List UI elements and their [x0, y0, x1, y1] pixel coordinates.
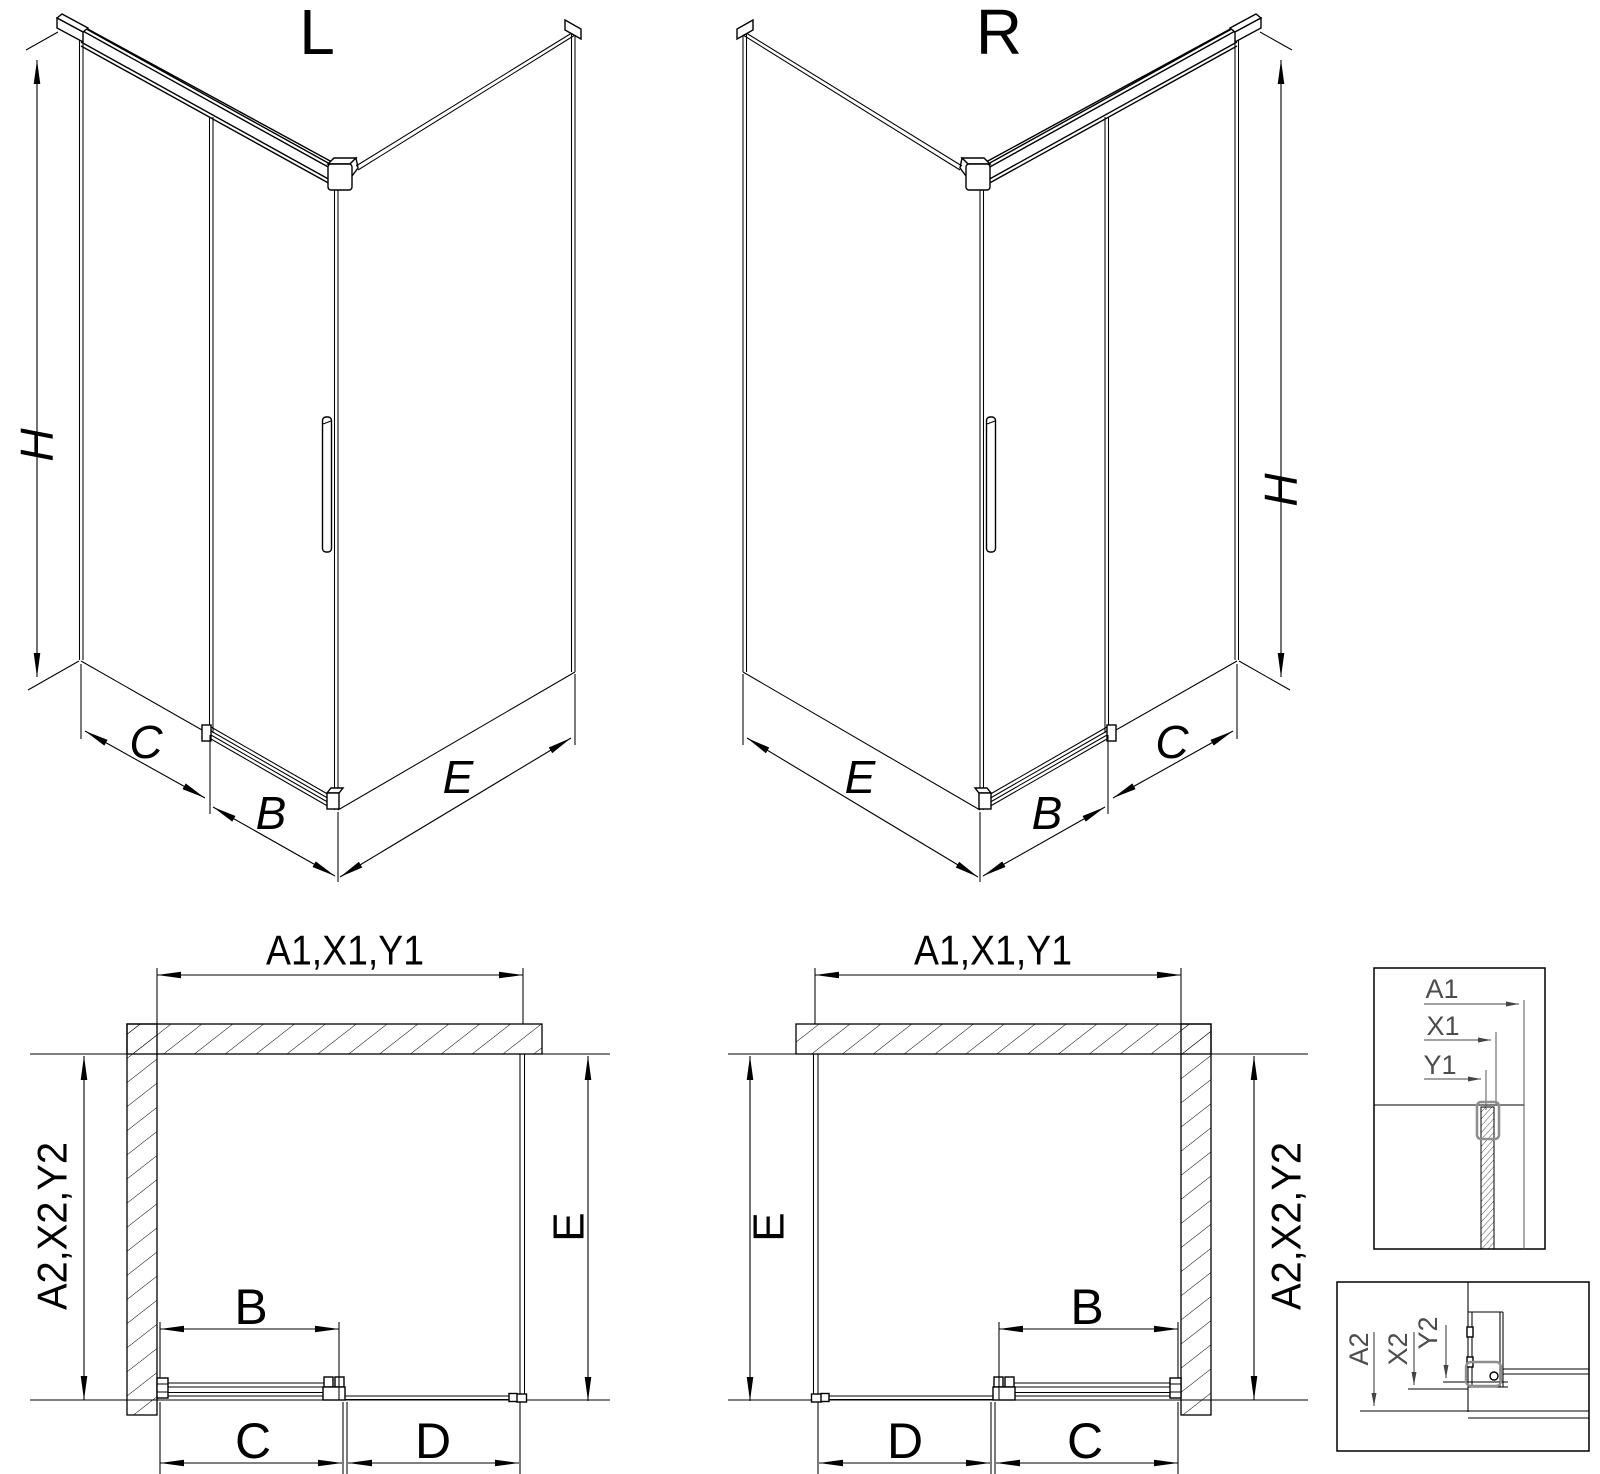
side-panel-plan [517, 1054, 527, 1402]
fixed-glass-plan [345, 1396, 511, 1400]
rail-corner-block-top [975, 788, 991, 793]
wall-left-hatched [127, 1024, 157, 1415]
plan-left-top-dim: A1,X1,Y1 [266, 927, 424, 974]
plan-right-b: B [1070, 1279, 1103, 1335]
dim-label-e-left: E [443, 751, 475, 803]
rail-corner-block [979, 793, 991, 809]
corner-block [966, 164, 990, 190]
carriage-notch [1467, 1327, 1473, 1337]
dim-label-h-right: H [1255, 473, 1307, 507]
dim-label-c-right: C [1155, 716, 1189, 768]
plan-view-right: A1,X1,Y1 A2,X2,Y2 B D C E [728, 927, 1310, 1474]
plan-right-top-dim: A1,X1,Y1 [914, 927, 1072, 974]
plan-right-side-dim: A2,X2,Y2 [1263, 1142, 1310, 1310]
door-seam-edge [210, 117, 214, 733]
roller-wheel [1490, 1372, 1498, 1380]
roller-carriage [323, 1387, 345, 1400]
plan-right-d: D [887, 1413, 923, 1469]
plan-left-c: C [235, 1413, 271, 1469]
plan-view-left: A1,X1,Y1 A2,X2,Y2 B C D E [29, 927, 611, 1474]
plan-right-c: C [1067, 1413, 1103, 1469]
fixed-panel-right [1105, 40, 1239, 734]
wall-profile-bracket [157, 1378, 168, 1398]
corner-post-left [335, 190, 339, 810]
dim-label-b-right: B [1032, 787, 1063, 839]
side-panel-plan [812, 1054, 822, 1402]
detail-y1: Y1 [1423, 1050, 1456, 1080]
dimensions-iso-left [26, 32, 575, 882]
plan-left-d: D [415, 1413, 451, 1469]
detail-x2: X2 [1383, 1332, 1413, 1365]
rail-corner-block [327, 793, 339, 809]
plan-left-side-dim: A2,X2,Y2 [29, 1142, 76, 1310]
door-rails [168, 1383, 330, 1396]
roller-knob [1005, 1377, 1014, 1387]
technical-drawing-canvas: L H C B E [0, 0, 1600, 1474]
corner-post-right [980, 190, 984, 810]
dim-label-h-left: H [11, 428, 63, 462]
detail-y2: Y2 [1413, 1316, 1443, 1349]
rail-corner-block-top [327, 788, 343, 793]
corner-block [328, 164, 352, 190]
iso-view-right: R H C B E [737, 0, 1307, 882]
detail-frame [1337, 1282, 1589, 1451]
wall-right-hatched [1181, 1024, 1211, 1415]
plan-left-b: B [234, 1279, 267, 1335]
side-panel-foot [812, 1394, 822, 1402]
bottom-track-section [1503, 1369, 1589, 1374]
wall-top-hatched [127, 1024, 542, 1054]
plan-right-e: E [745, 1212, 794, 1241]
fixed-panel-left [80, 40, 214, 734]
door-handle-left [323, 417, 332, 552]
roller-carriage [993, 1387, 1015, 1400]
detail-view-top: A1 X1 Y1 [1374, 968, 1545, 1249]
side-panel-foot [517, 1394, 527, 1402]
glass-end-cap [509, 1394, 517, 1402]
glass-section-hatched [1481, 1107, 1494, 1249]
door-seam-edge [1105, 117, 1109, 733]
door-assembly-plan [157, 1377, 517, 1402]
detail-view-bottom: A2 X2 Y2 [1337, 1282, 1589, 1451]
iso-view-left: L H C B E [11, 0, 581, 882]
detail-a2: A2 [1344, 1332, 1374, 1365]
door-assembly-plan [821, 1377, 1181, 1402]
fixed-glass-plan [827, 1396, 993, 1400]
iso-right-title: R [976, 0, 1022, 68]
side-panel-left [338, 20, 581, 810]
dim-label-b-left: B [256, 787, 287, 839]
glass-end-cap [821, 1394, 829, 1402]
wall-top-hatched [796, 1024, 1211, 1054]
wall-profile-bracket [1170, 1378, 1181, 1398]
dim-label-c-left: C [129, 716, 163, 768]
door-rails [1008, 1383, 1170, 1396]
roller-knob [324, 1377, 333, 1387]
door-handle-right [987, 417, 996, 552]
plan-left-e: E [545, 1212, 594, 1241]
iso-left-title: L [299, 0, 335, 68]
dim-label-e-right: E [845, 751, 877, 803]
detail-a1: A1 [1425, 974, 1458, 1004]
side-panel-right [737, 20, 980, 810]
dimensions-iso-right [743, 32, 1292, 882]
detail-x1: X1 [1426, 1011, 1459, 1041]
